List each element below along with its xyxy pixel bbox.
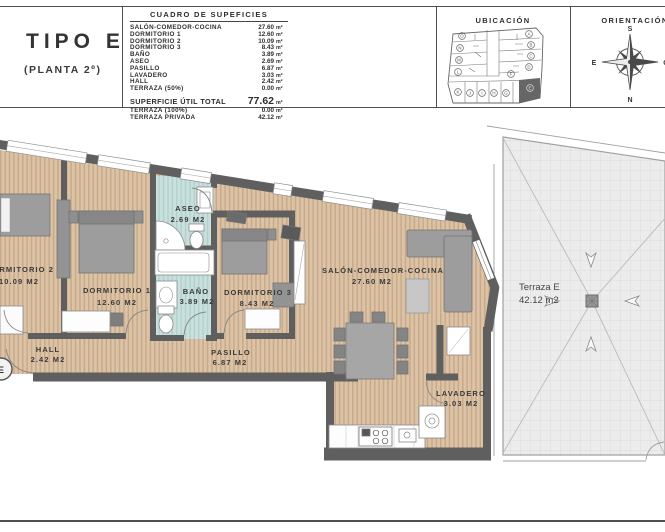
room-name-dormitorio-2: DORMITORIO 2 (0, 265, 54, 274)
bed-dormitorio-1 (69, 211, 143, 273)
room-name-pasillo: PASILLO (211, 348, 251, 357)
room-area-dormitorio-3: 8.43 M2 (240, 299, 275, 308)
bathtub (155, 250, 214, 275)
room-area-dormitorio-2: 10.09 M2 (0, 277, 39, 286)
chair-dormitorio-1 (111, 313, 123, 326)
stove (359, 427, 392, 446)
room-area-bano: 3.89 M2 (180, 297, 215, 306)
entry-marker-letter: E (0, 365, 4, 375)
ac-unit (281, 225, 301, 241)
room-name-dormitorio-3: DORMITORIO 3 (224, 288, 292, 297)
floor-plan: Terraza E 42.12 m2 (0, 0, 665, 532)
bed-dormitorio-2 (0, 194, 50, 236)
tv-sideboard (294, 241, 305, 304)
terrace-drain (586, 295, 598, 307)
terrace-name-label: Terraza E (519, 282, 560, 293)
coffee-table (406, 279, 429, 313)
room-area-salon: 27.60 M2 (352, 277, 392, 286)
dresser-dormitorio-2 (0, 306, 23, 334)
toilet-aseo (189, 224, 204, 249)
terrace-area-label: 42.12 m2 (519, 295, 559, 306)
room-name-lavadero: LAVADERO (436, 389, 486, 398)
room-area-hall: 2.42 M2 (31, 355, 66, 364)
floor-plan-sheet: TIPO E (PLANTA 2º) CUADRO DE SUPEFICIES … (0, 0, 665, 532)
wardrobe-dormitorio-2 (57, 200, 70, 278)
washing-machine (419, 406, 445, 438)
room-name-aseo: ASEO (175, 204, 201, 213)
desk-dormitorio-1 (62, 311, 110, 332)
room-area-lavadero: 3.03 M2 (444, 399, 479, 408)
washbasin-bano (156, 281, 177, 308)
room-area-dormitorio-1: 12.60 M2 (97, 298, 137, 307)
toilet-bano (158, 306, 174, 333)
sink (399, 429, 416, 442)
room-name-dormitorio-1: DORMITORIO 1 (83, 286, 151, 295)
boiler (447, 327, 470, 355)
room-area-pasillo: 6.87 M2 (213, 358, 248, 367)
terrace: Terraza E 42.12 m2 (487, 126, 665, 470)
room-area-aseo: 2.69 M2 (171, 215, 206, 224)
kitchen-counter (329, 425, 425, 448)
room-name-bano: BAÑO (183, 287, 209, 296)
room-name-hall: HALL (36, 345, 60, 354)
desk-dormitorio-3 (245, 309, 280, 329)
room-name-salon: SALÓN-COMEDOR-COCINA (322, 266, 444, 275)
